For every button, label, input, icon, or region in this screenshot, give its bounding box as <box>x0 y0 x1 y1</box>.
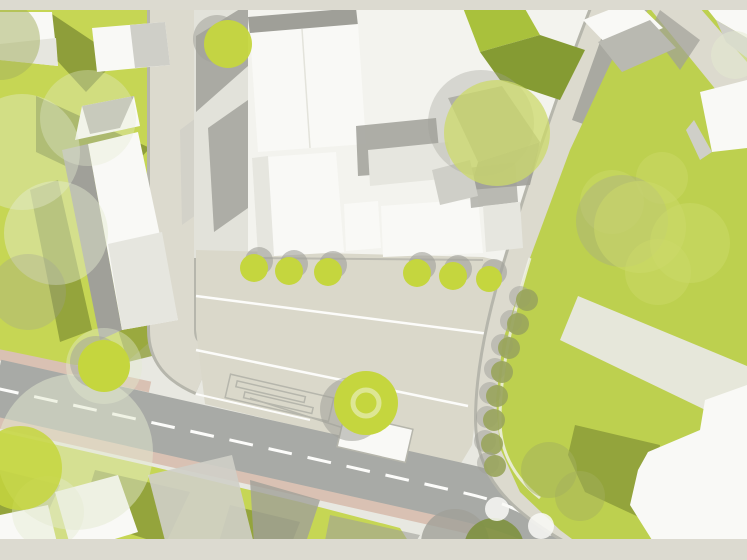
tree-crown <box>204 20 252 68</box>
tree-crown <box>528 513 554 539</box>
tree-crown <box>483 409 505 431</box>
shadow-on-street <box>180 118 196 225</box>
tree-canopy <box>40 70 136 166</box>
site-plan-drawing <box>0 0 747 560</box>
tree-crown <box>78 340 130 392</box>
tree-crown <box>40 70 136 166</box>
tree-crown <box>314 258 342 286</box>
tree-crown <box>516 289 538 311</box>
building-wing <box>483 202 523 252</box>
building <box>344 201 381 251</box>
tree-crown <box>491 361 513 383</box>
tree-crown <box>486 385 508 407</box>
site-plan-canvas <box>0 0 747 560</box>
top-border-bar <box>0 0 747 10</box>
tree-crown <box>485 497 509 521</box>
tree-crown <box>439 262 467 290</box>
tree-crown <box>625 239 691 305</box>
tree-crown <box>498 337 520 359</box>
tree-crown <box>476 266 502 292</box>
tree-canopy <box>625 239 691 305</box>
tree-crown <box>334 371 398 435</box>
tree-canopy <box>528 513 554 539</box>
tree-crown <box>275 257 303 285</box>
tree-crown <box>481 433 503 455</box>
tree-crown <box>484 455 506 477</box>
building-main <box>250 24 366 152</box>
bottom-border-bar <box>0 539 747 560</box>
tree-crown <box>444 80 550 186</box>
building-roof <box>130 22 170 68</box>
building <box>381 199 483 257</box>
tree-crown <box>507 313 529 335</box>
tree-canopy <box>555 471 605 521</box>
tree-canopy <box>485 497 509 521</box>
tree-crown <box>240 254 268 282</box>
tree-crown <box>403 259 431 287</box>
tree-crown <box>555 471 605 521</box>
